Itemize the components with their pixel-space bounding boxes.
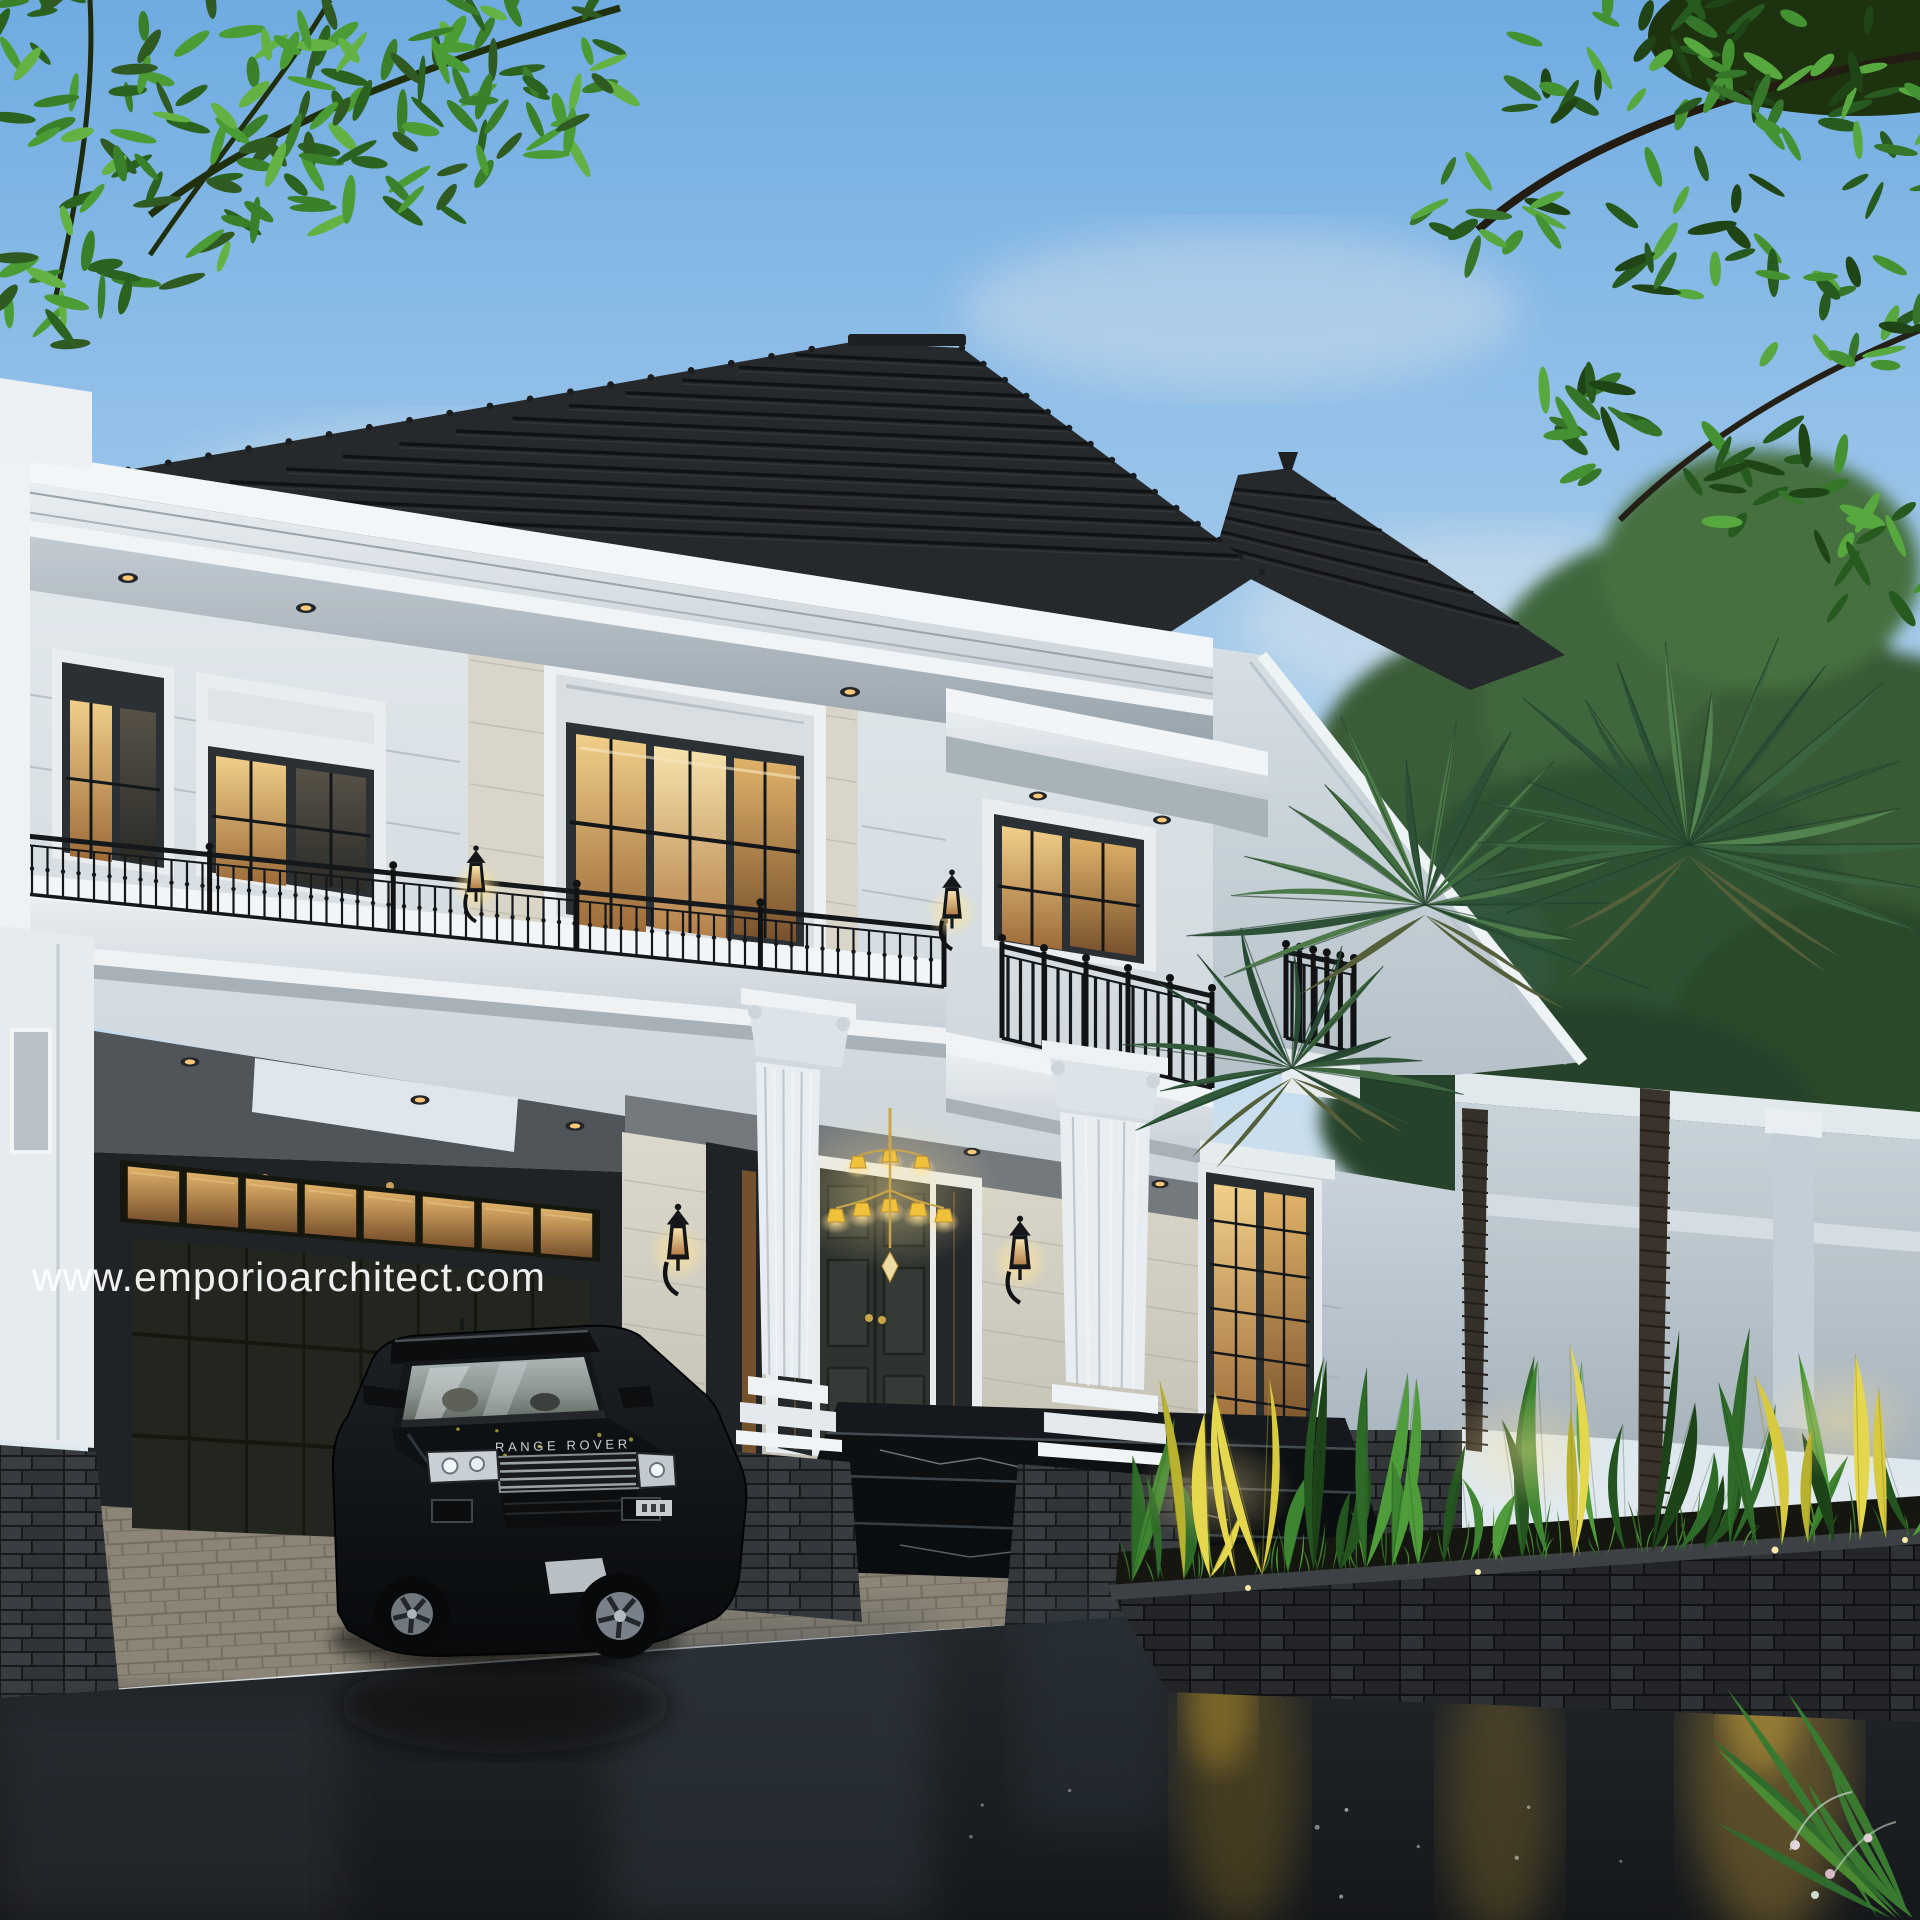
car-wheel-front xyxy=(577,1573,663,1659)
car-fog-left xyxy=(432,1500,472,1522)
rendering-canvas: RANGE ROVER xyxy=(0,0,1920,1920)
house xyxy=(0,334,1583,1697)
watermark: www.emporioarchitect.com xyxy=(32,1254,546,1301)
car-mirror-right xyxy=(618,1386,654,1408)
car-lower-grille xyxy=(500,1490,640,1528)
car-wheel-rear xyxy=(374,1576,450,1652)
window-upper-center xyxy=(544,660,826,966)
car-steering-wheel xyxy=(530,1393,560,1411)
car-headlight-left xyxy=(427,1450,499,1483)
architectural-rendering: RANGE ROVER www.emporioarchitect.com xyxy=(0,0,1920,1920)
